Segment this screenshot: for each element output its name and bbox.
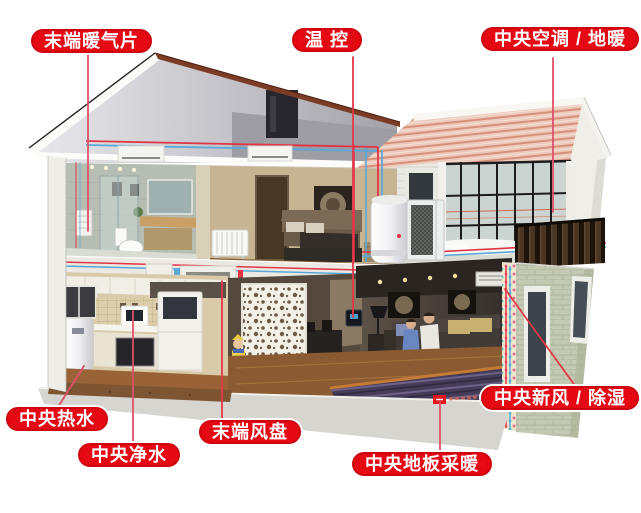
towel-radiator <box>76 210 92 236</box>
hvac-house-diagram: 末端暖气片 温 控 中央空调 / 地暖 中央热水 中央净水 末端风盘 中央地板采… <box>0 0 641 513</box>
fan-coil-unit <box>248 146 292 161</box>
label-central-floor-heating: 中央地板采暖 <box>352 452 492 476</box>
label-central-water-purifier: 中央净水 <box>78 443 180 467</box>
label-central-hot-water: 中央热水 <box>6 407 108 431</box>
left-wall-edge <box>48 156 66 392</box>
fresh-air-vent <box>476 272 506 286</box>
house-illustration <box>0 0 641 513</box>
label-central-fresh-air: 中央新风 / 除湿 <box>481 386 639 410</box>
label-terminal-fan-coil: 末端风盘 <box>199 420 301 444</box>
vanity <box>140 216 196 228</box>
bed <box>282 210 362 262</box>
balcony-railing <box>515 219 605 268</box>
bathroom <box>64 162 198 262</box>
radiator <box>212 230 248 260</box>
heat-pump-equipment <box>362 195 444 263</box>
label-central-ac-floor-heating: 中央空调 / 地暖 <box>481 27 639 51</box>
brick-corner-wall <box>502 262 594 438</box>
hot-water-tank <box>63 318 93 370</box>
mirror <box>148 180 192 214</box>
kitchen <box>58 272 232 394</box>
label-terminal-radiator: 末端暖气片 <box>31 29 152 53</box>
fan-coil-unit <box>118 146 164 162</box>
oven <box>116 338 154 366</box>
label-temperature-control: 温 控 <box>292 28 362 52</box>
